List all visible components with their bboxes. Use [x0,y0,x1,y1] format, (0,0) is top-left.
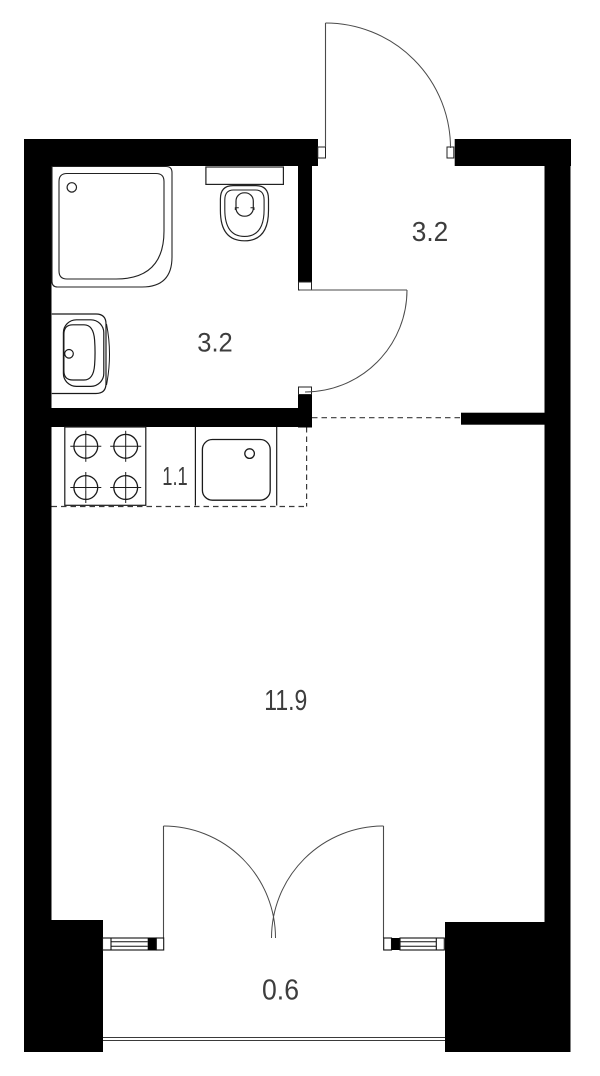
svg-text:0.6: 0.6 [262,975,299,1007]
svg-text:3.2: 3.2 [197,327,233,357]
svg-text:11.9: 11.9 [264,685,307,717]
svg-text:1.1: 1.1 [162,461,188,491]
svg-text:3.2: 3.2 [412,216,449,247]
